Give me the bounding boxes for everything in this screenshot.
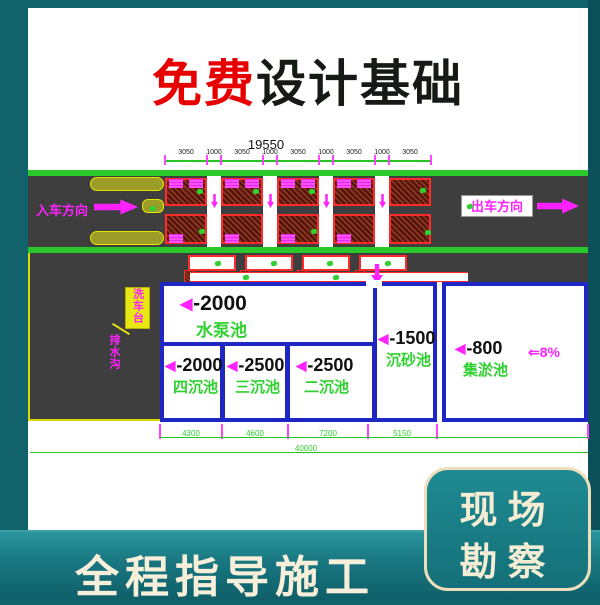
dimension-tick (164, 155, 166, 165)
traffic-island (90, 177, 164, 191)
flow-triangle-icon: ◀ (296, 358, 306, 373)
title-rest: 设计基础 (256, 56, 464, 112)
flow-triangle-icon: ◀ (378, 331, 388, 346)
pool-label: ◀-2500 三沉池 (227, 355, 284, 397)
bay-pad (245, 179, 259, 188)
drain-channel-box (245, 255, 293, 271)
bay-pad (189, 179, 203, 188)
dimension-label: 3050 (171, 149, 201, 156)
page-title: 免费设计基础 (28, 44, 588, 116)
flow-triangle-icon: ◀ (455, 341, 465, 356)
pool-label: ◀-2000 四沉池 (165, 355, 222, 397)
flow-triangle-icon: ◀ (227, 358, 237, 373)
bay-lane (207, 176, 221, 247)
title-highlight: 免费 (152, 56, 256, 112)
dimension-label: 3050 (283, 149, 313, 156)
pool-label: ◀-1500 沉砂池 (378, 328, 435, 370)
callout-leader-label: 排水沟 (106, 334, 122, 382)
bay-pad (337, 179, 351, 188)
side-panel-line2: 勘察 (424, 531, 591, 586)
total-dimension-label: 40000 (286, 444, 326, 453)
wash-bay-hatch (389, 214, 431, 244)
bay-lane (263, 176, 277, 247)
side-panel-line1: 现场 (424, 479, 591, 534)
dimension-label: 1000 (199, 149, 229, 156)
bay-pad (169, 234, 183, 243)
dimension-tick (430, 155, 432, 165)
bay-pad (337, 234, 351, 243)
traffic-island (90, 231, 164, 245)
dimension-tick (332, 155, 334, 165)
bottom-dimension-line (160, 437, 588, 438)
dimension-tick (276, 155, 278, 165)
bay-pad (169, 179, 183, 188)
dimension-tick (206, 155, 208, 165)
flow-triangle-icon: ◀ (180, 296, 192, 313)
dimension-label: 3050 (339, 149, 369, 156)
drain-channel-box (188, 255, 236, 271)
dimension-tick (262, 155, 264, 165)
pool-label: ◀-800 集淤池 (455, 338, 508, 380)
dimension-label: 3050 (227, 149, 257, 156)
pool-label: ◀-2000 水泵池 (180, 292, 247, 341)
callout-box: 洗车台 (125, 287, 150, 329)
horizontal-drain-channel (190, 272, 468, 282)
dimension-tick (374, 155, 376, 165)
dimension-label: 3050 (395, 149, 425, 156)
bay-pad (301, 179, 315, 188)
flow-triangle-icon: ◀ (165, 358, 175, 373)
dimension-tick (388, 155, 390, 165)
entry-direction-label: 入车方向 (36, 200, 88, 219)
dimension-tick (220, 155, 222, 165)
dimension-tick (318, 155, 320, 165)
slope-label: ⇐8% (528, 344, 560, 361)
pool-label: ◀-2500 二沉池 (296, 355, 353, 397)
bay-lane (319, 176, 333, 247)
callout-box-label: 洗车台 (130, 288, 146, 324)
bay-pad (225, 234, 239, 243)
banner-text: 全程指导施工 (30, 541, 420, 605)
pool-inlet-gap (366, 280, 382, 288)
dimension-label: 1000 (311, 149, 341, 156)
bay-pad (357, 179, 371, 188)
bay-pad (281, 179, 295, 188)
bay-pad (281, 234, 295, 243)
dimension-label: 1000 (255, 149, 285, 156)
bay-lane (375, 176, 389, 247)
drain-channel-box (359, 255, 407, 271)
dimension-label: 1000 (367, 149, 397, 156)
bay-pad (225, 179, 239, 188)
ground-area-left (28, 253, 160, 421)
